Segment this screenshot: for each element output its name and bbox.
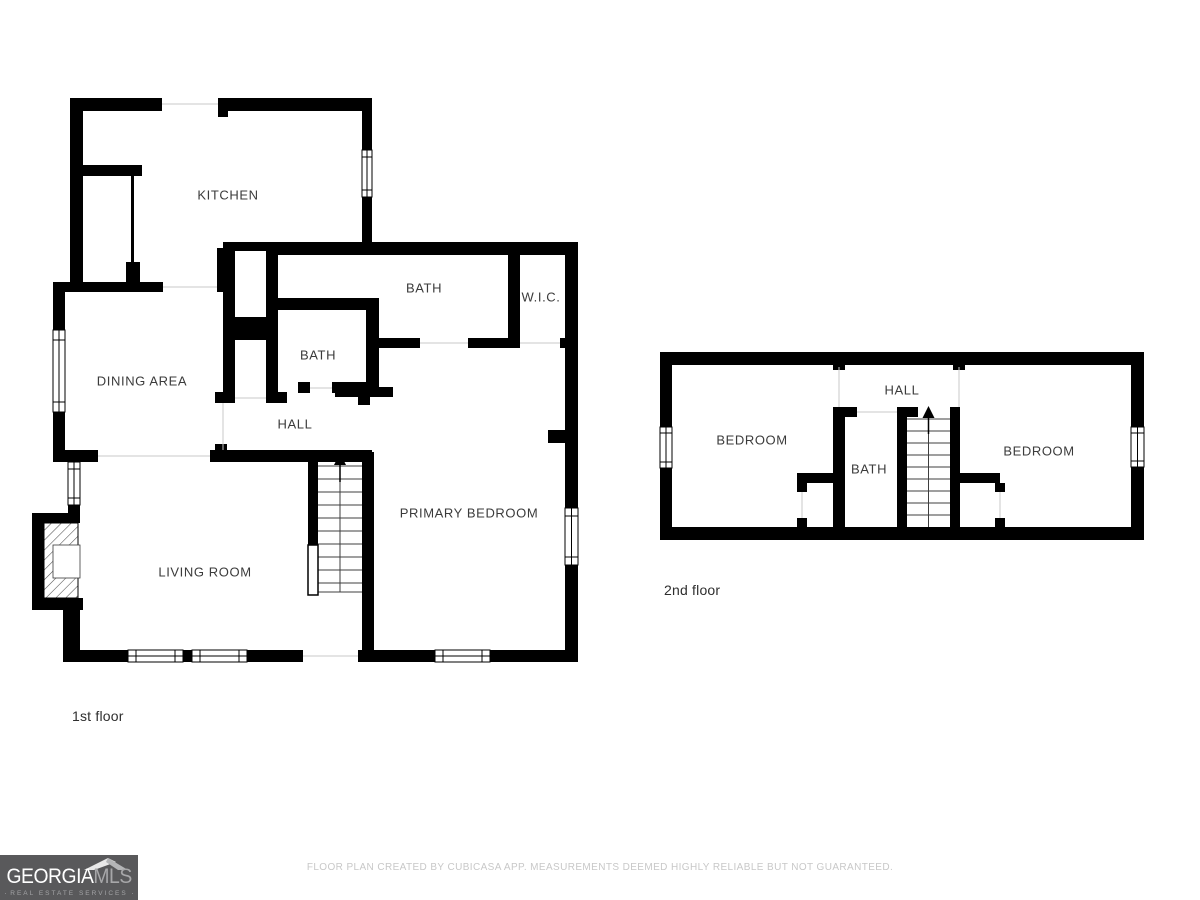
georgia-mls-logo: GEORGIAMLS REAL ESTATE SERVICES — [0, 855, 138, 900]
room-label-bath-upper: BATH — [406, 281, 442, 296]
room-label-wic: W.I.C. — [522, 290, 561, 305]
room-label-bedroom-left: BEDROOM — [716, 433, 787, 448]
room-label-bedroom-right: BEDROOM — [1003, 444, 1074, 459]
room-label-hall-second: HALL — [885, 383, 920, 398]
room-label-dining-area: DINING AREA — [97, 374, 187, 389]
room-label-bath-lower: BATH — [300, 348, 336, 363]
logo-brand-text: GEORGIAMLS — [6, 866, 131, 887]
room-label-living-room: LIVING ROOM — [158, 565, 251, 580]
first-floor-caption: 1st floor — [72, 708, 124, 724]
room-label-primary-bedroom: PRIMARY BEDROOM — [400, 506, 539, 521]
tagline-rule-right — [132, 893, 133, 894]
logo-brand-primary: GEORGIA — [6, 865, 93, 888]
stair-railing — [308, 545, 318, 595]
room-label-bath-second: BATH — [851, 462, 887, 477]
fireplace — [44, 523, 80, 598]
floor-plan-page: KITCHEN BATH W.I.C. BATH DINING AREA HAL… — [0, 0, 1200, 900]
room-label-kitchen: KITCHEN — [197, 188, 258, 203]
room-label-hall-first: HALL — [278, 417, 313, 432]
logo-brand-secondary: MLS — [93, 865, 131, 888]
second-floor-caption: 2nd floor — [664, 582, 720, 598]
stair-up-arrow — [923, 406, 935, 434]
second-floor-stairs — [907, 406, 950, 527]
logo-tagline-text: REAL ESTATE SERVICES — [10, 890, 127, 897]
disclaimer-text: FLOOR PLAN CREATED BY CUBICASA APP. MEAS… — [0, 862, 1200, 873]
tagline-rule-left — [5, 893, 6, 894]
logo-tagline: REAL ESTATE SERVICES — [5, 890, 133, 897]
